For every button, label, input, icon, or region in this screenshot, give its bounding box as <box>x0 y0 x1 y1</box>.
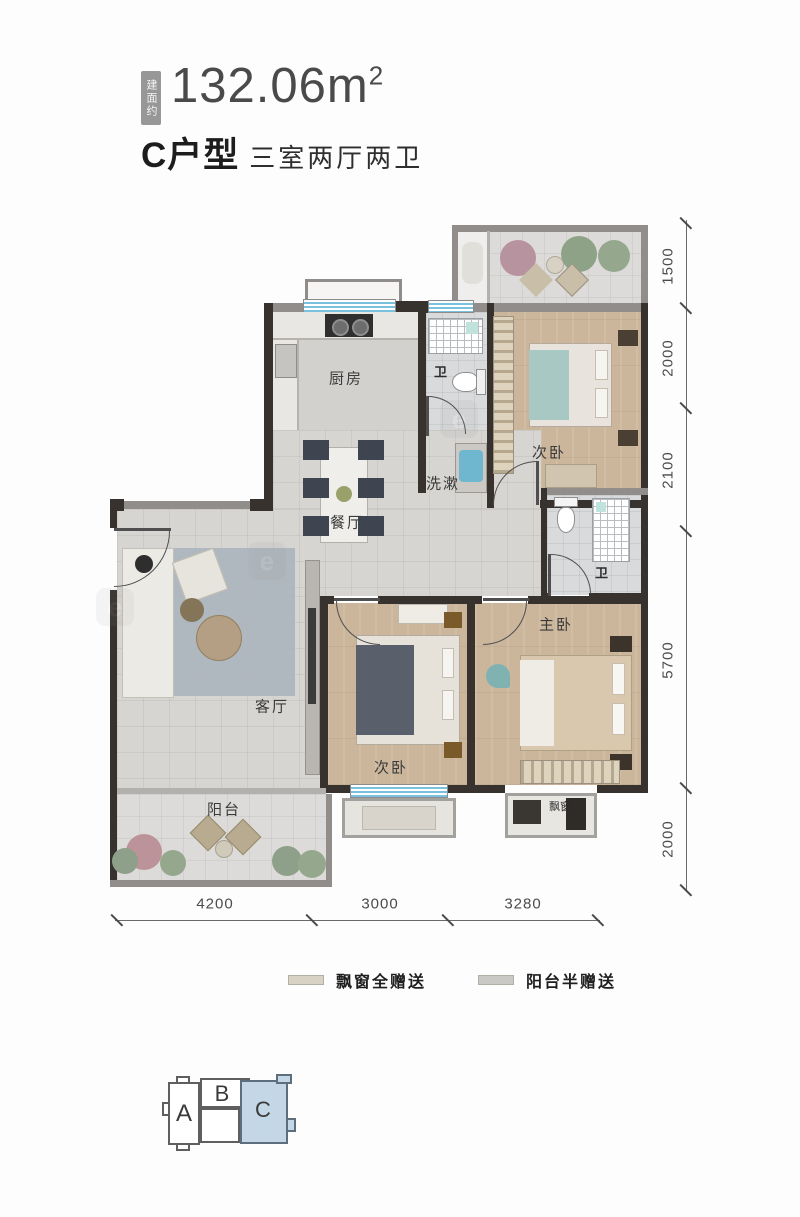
toilet-tank <box>476 369 486 395</box>
room-label-bay-window: 飘窗 <box>549 798 571 814</box>
wall <box>250 499 273 511</box>
plant-icon <box>160 850 186 876</box>
wall <box>110 501 273 509</box>
wall <box>110 880 332 887</box>
nightstand-icon <box>444 742 462 758</box>
wall <box>467 596 475 792</box>
table-plant-icon <box>336 486 352 502</box>
wall <box>320 596 328 792</box>
terrace-table-icon <box>546 256 564 274</box>
balcony-table-icon <box>215 840 233 858</box>
legend-label-bay-window: 飘窗全赠送 <box>336 968 426 992</box>
dim-value: 4200 <box>196 896 233 913</box>
watermark: e <box>248 542 286 580</box>
bedroom-mid-window <box>350 784 448 798</box>
wall <box>541 488 648 495</box>
dim-line <box>686 220 687 892</box>
wall <box>475 596 482 604</box>
wall <box>110 501 117 528</box>
room-label-bedroom-top: 次卧 <box>532 442 566 463</box>
entry-rug <box>462 242 483 284</box>
nightstand-icon <box>610 636 632 652</box>
keyplan-label-a: A <box>176 1100 192 1128</box>
pillow <box>612 703 625 735</box>
room-label-bath-top: 卫 <box>434 362 448 381</box>
wall <box>541 488 547 600</box>
pillow <box>442 648 454 678</box>
keyplan-notch <box>286 1118 296 1132</box>
wall <box>641 225 648 310</box>
bed-blanket <box>529 350 569 420</box>
keyplan-notch <box>176 1143 190 1151</box>
burner-icon <box>332 319 349 336</box>
pillow <box>612 663 625 695</box>
legend-swatch-balcony <box>478 975 514 985</box>
wall <box>487 231 490 305</box>
wall <box>597 785 648 793</box>
coffee-table-icon <box>180 598 204 622</box>
dim-value: 3280 <box>504 896 541 913</box>
desk-icon <box>545 464 597 488</box>
keyplan-notch <box>162 1102 170 1116</box>
sink-icon <box>459 450 483 482</box>
area-sup: 2 <box>369 61 384 91</box>
wall <box>110 590 117 887</box>
bath-window <box>428 300 474 313</box>
dining-chair <box>303 478 329 498</box>
legend-swatch-bay-window <box>288 975 324 985</box>
toilet-icon <box>557 507 575 533</box>
watermark: e <box>96 588 134 626</box>
nightstand-icon <box>444 612 462 628</box>
toilet-tank <box>554 497 578 507</box>
pillow <box>595 350 608 380</box>
wall <box>448 785 505 793</box>
room-label-bedroom-mid: 次卧 <box>374 757 408 778</box>
wall <box>418 303 426 493</box>
bed-blanket <box>356 645 414 735</box>
keyplan-core <box>200 1108 240 1143</box>
room-label-bath-ensuite: 卫 <box>595 563 609 582</box>
shower-accent <box>596 502 606 512</box>
area-value: 132.06m2 <box>171 58 384 114</box>
area-badge: 建面约 <box>141 71 161 125</box>
wardrobe <box>520 760 620 784</box>
dining-chair <box>303 440 329 460</box>
bed-blanket <box>520 660 554 746</box>
chair-icon <box>486 664 510 688</box>
wardrobe <box>493 316 514 474</box>
pillow <box>442 690 454 720</box>
floorplan-page: 建面约 132.06m2 C户型 三室两厅两卫 <box>0 0 800 1217</box>
plant-icon <box>112 848 138 874</box>
wall <box>452 225 648 232</box>
wall <box>641 303 648 793</box>
wall <box>378 596 475 604</box>
plant-icon <box>298 850 326 878</box>
nightstand-icon <box>618 330 638 346</box>
keyplan-notch <box>176 1076 190 1084</box>
room-label-balcony: 阳台 <box>207 799 241 820</box>
plant-icon <box>598 240 630 272</box>
dim-value: 1500 <box>660 247 677 284</box>
pillow <box>595 388 608 418</box>
burner-icon <box>352 319 369 336</box>
wall <box>528 596 648 604</box>
toilet-icon <box>452 372 478 392</box>
room-label-living: 客厅 <box>255 696 289 717</box>
room-label-kitchen: 厨房 <box>329 368 363 389</box>
kitchen-window <box>303 299 396 313</box>
layout-desc: 三室两厅两卫 <box>249 138 423 175</box>
tv-icon <box>308 608 316 704</box>
bay-window-bench <box>362 806 436 830</box>
unit-type-line: C户型 三室两厅两卫 <box>141 127 423 178</box>
legend-label-balcony: 阳台半赠送 <box>526 968 616 992</box>
keyplan-label-b: B <box>215 1081 230 1107</box>
dim-value: 3000 <box>361 896 398 913</box>
keyplan-notch <box>276 1074 292 1084</box>
balcony-slider <box>117 788 326 794</box>
dim-value: 2000 <box>660 339 677 376</box>
room-label-dining: 餐厅 <box>330 512 364 533</box>
plant-icon <box>561 236 597 272</box>
dim-value: 2000 <box>660 820 677 857</box>
nightstand-icon <box>618 430 638 446</box>
wall <box>452 225 458 310</box>
area-number: 132.06 <box>171 59 327 113</box>
dining-chair <box>358 478 384 498</box>
watermark: e <box>440 400 478 438</box>
wall <box>264 303 273 508</box>
shower-accent <box>466 322 478 334</box>
keyplan-label-c: C <box>255 1097 271 1123</box>
unit-type: C户型 <box>141 127 239 178</box>
coffee-table-icon <box>196 615 242 661</box>
dim-value: 2100 <box>660 451 677 488</box>
dim-value: 5700 <box>660 641 677 678</box>
area-unit: m <box>327 59 369 113</box>
dining-chair <box>303 516 329 536</box>
legend: 飘窗全赠送 阳台半赠送 <box>288 968 616 992</box>
room-label-washroom: 洗漱 <box>426 473 460 494</box>
dining-chair <box>358 440 384 460</box>
bay-window-furniture <box>513 800 541 824</box>
fridge-icon <box>275 344 297 378</box>
dresser <box>398 604 448 624</box>
dim-line <box>115 920 600 921</box>
room-label-master: 主卧 <box>539 614 573 635</box>
wall <box>326 794 332 887</box>
